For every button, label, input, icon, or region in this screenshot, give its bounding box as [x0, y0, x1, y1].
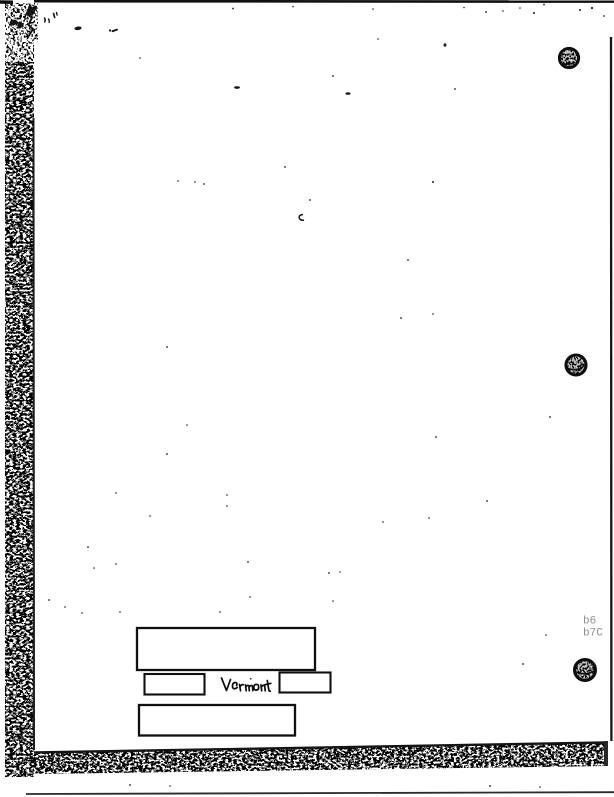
svg-text:b7C: b7C [583, 628, 603, 640]
svg-text:b6: b6 [583, 616, 596, 628]
